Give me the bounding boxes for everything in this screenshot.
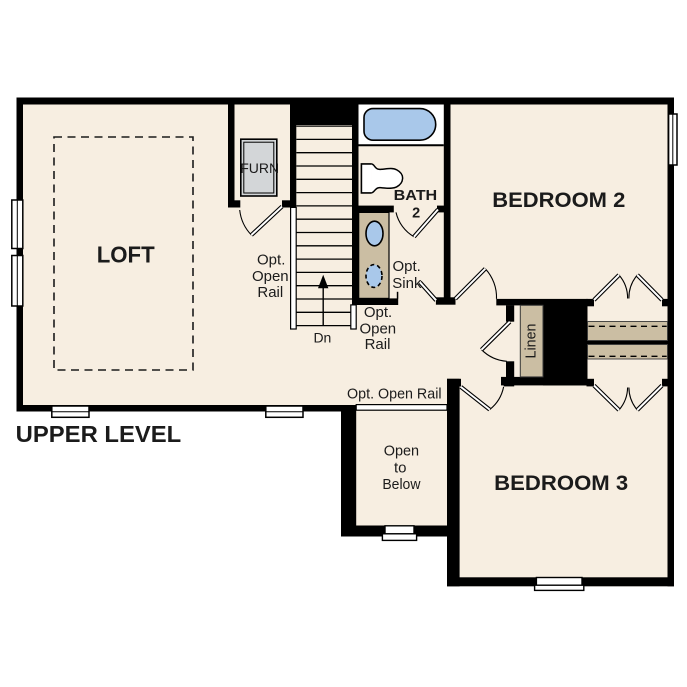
svg-text:Below: Below [382,476,420,493]
svg-text:Open: Open [359,321,396,338]
svg-text:Sink: Sink [392,275,422,292]
svg-text:Linen: Linen [524,324,540,359]
svg-text:Open: Open [384,443,419,460]
svg-text:Dn: Dn [313,329,331,345]
svg-text:Opt.: Opt. [257,251,285,268]
svg-text:Open: Open [252,268,289,285]
svg-text:2: 2 [412,206,420,222]
svg-text:UPPER LEVEL: UPPER LEVEL [16,421,182,447]
svg-text:Opt. Open Rail: Opt. Open Rail [347,386,442,403]
svg-text:FURN: FURN [240,160,279,176]
svg-text:to: to [394,460,407,477]
svg-text:BEDROOM 3: BEDROOM 3 [494,471,628,495]
svg-text:BEDROOM 2: BEDROOM 2 [492,188,625,212]
svg-text:Rail: Rail [365,336,391,353]
svg-text:Opt.: Opt. [393,258,421,275]
svg-text:Opt.: Opt. [364,304,392,321]
svg-text:BATH: BATH [394,188,438,204]
svg-text:LOFT: LOFT [97,241,156,267]
svg-text:Rail: Rail [257,284,283,301]
